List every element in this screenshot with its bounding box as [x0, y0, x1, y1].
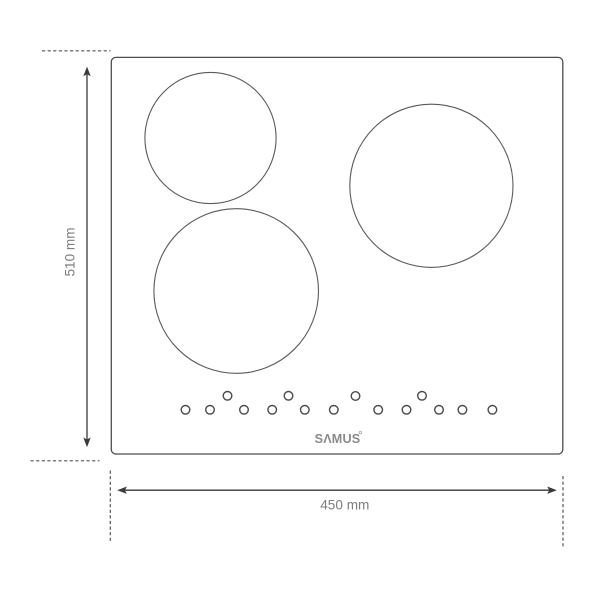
svg-text:510 mm: 510 mm — [63, 227, 78, 276]
svg-text:450 mm: 450 mm — [320, 498, 369, 513]
svg-text:SΛMUS: SΛMUS — [315, 432, 361, 446]
